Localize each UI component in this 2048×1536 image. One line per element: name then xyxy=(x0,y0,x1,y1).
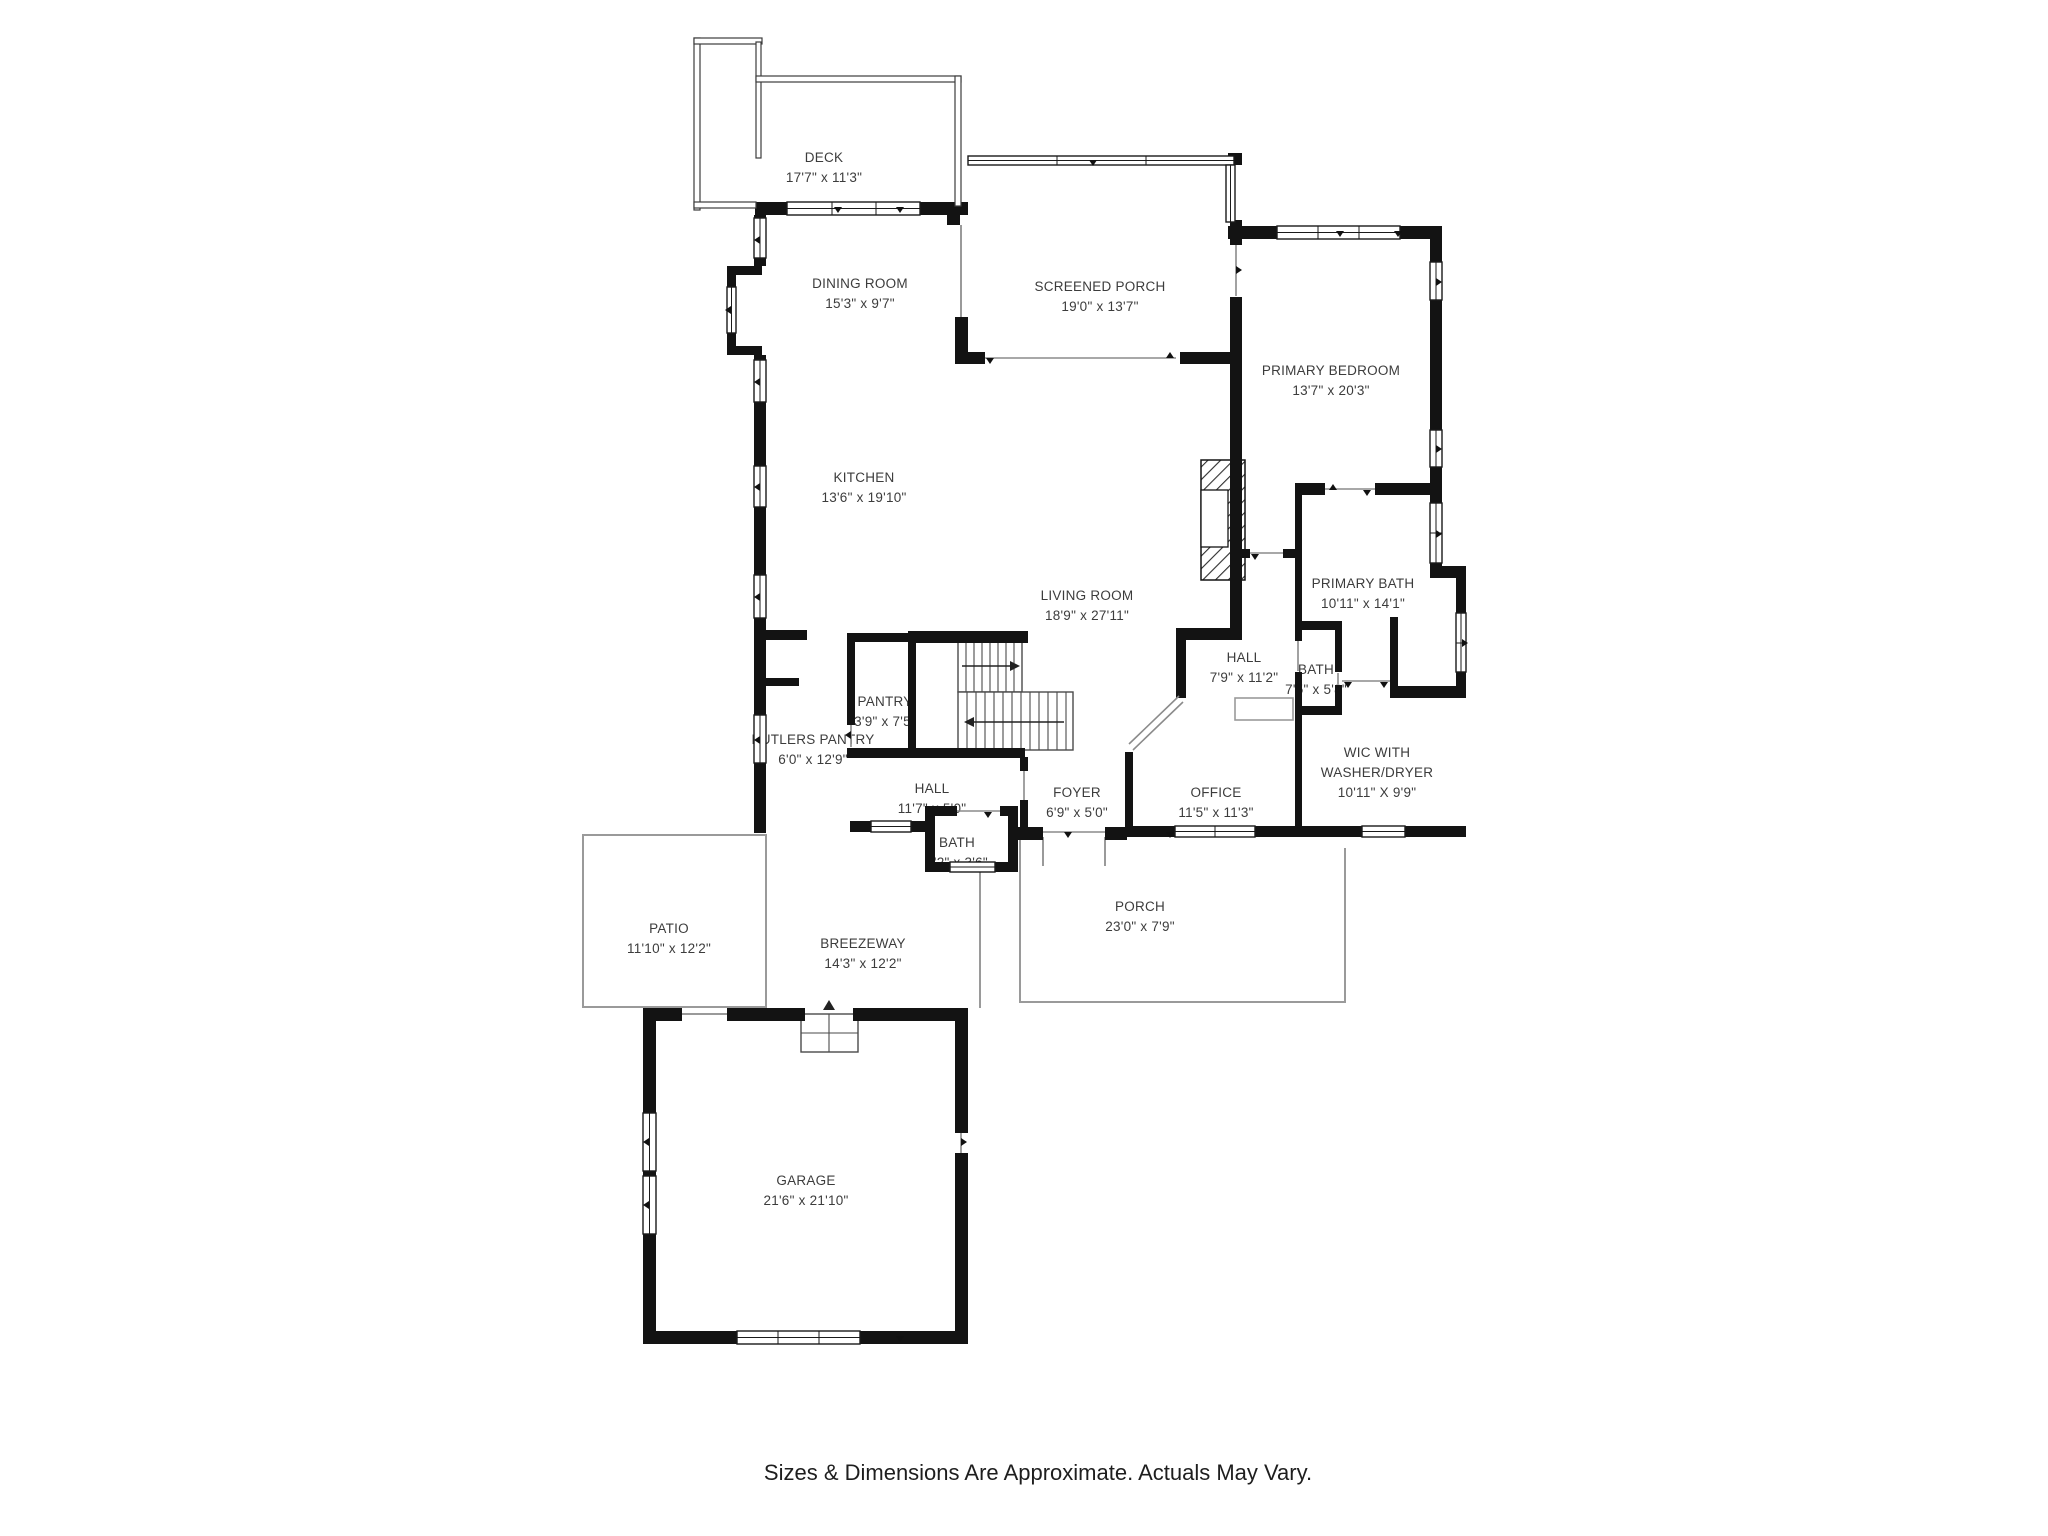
room-name: BUTLERS PANTRY xyxy=(751,732,874,747)
room-dims: 13'7" x 20'3" xyxy=(1292,383,1369,398)
room-name: KITCHEN xyxy=(833,470,894,485)
room-dims: 7'9" x 11'2" xyxy=(1210,670,1279,685)
room-name: FOYER xyxy=(1053,785,1101,800)
window xyxy=(950,862,995,872)
room-name: OFFICE xyxy=(1191,785,1242,800)
room-name: DECK xyxy=(805,150,844,165)
room-name: GARAGE xyxy=(776,1173,835,1188)
room-dims: 15'3" x 9'7" xyxy=(825,296,895,311)
room-label-garage: GARAGE21'6" x 21'10" xyxy=(763,1173,848,1208)
window xyxy=(871,821,911,832)
room-name: PANTRY xyxy=(857,694,912,709)
room-label-screened-porch: SCREENED PORCH19'0" x 13'7" xyxy=(1034,279,1165,314)
room-dims: 21'6" x 21'10" xyxy=(763,1193,848,1208)
room-dims: 23'0" x 7'9" xyxy=(1105,919,1175,934)
room-name-line2: WASHER/DRYER xyxy=(1321,765,1434,780)
room-dims: 6'0" x 12'9" xyxy=(778,752,848,767)
room-name: DINING ROOM xyxy=(812,276,908,291)
room-dims: 11'10" x 12'2" xyxy=(627,941,711,956)
room-name: PRIMARY BEDROOM xyxy=(1262,363,1400,378)
room-label-office: OFFICE11'5" x 11'3" xyxy=(1178,785,1253,820)
room-dims: 11'5" x 11'3" xyxy=(1178,805,1253,820)
room-dims: 13'6" x 19'10" xyxy=(821,490,906,505)
room-name: LIVING ROOM xyxy=(1041,588,1134,603)
office-angled-opening xyxy=(1129,696,1183,750)
staircase xyxy=(958,640,1073,750)
room-name: PATIO xyxy=(649,921,689,936)
room-label-deck: DECK17'7" x 11'3" xyxy=(786,150,862,185)
room-name: PRIMARY BATH xyxy=(1312,576,1415,591)
room-name: HALL xyxy=(915,781,950,796)
room-label-living-room: LIVING ROOM18'9" x 27'11" xyxy=(1041,588,1134,623)
porch-outline xyxy=(1020,837,1345,1002)
floor-plan: DECK17'7" x 11'3" SCREENED PORCH19'0" x … xyxy=(0,0,2048,1536)
room-label-foyer: FOYER6'9" x 5'0" xyxy=(1046,785,1108,820)
room-dims: 14'3" x 12'2" xyxy=(824,956,901,971)
room-name: WIC WITH xyxy=(1344,745,1410,760)
room-name: BATH xyxy=(1298,662,1334,677)
window xyxy=(1175,826,1255,837)
room-dims: 17'7" x 11'3" xyxy=(786,170,862,185)
room-label-primary-bedroom: PRIMARY BEDROOM13'7" x 20'3" xyxy=(1262,363,1400,398)
screened-porch-screens xyxy=(968,156,1235,222)
room-label-porch: PORCH23'0" x 7'9" xyxy=(1105,899,1175,934)
steps-up-arrow xyxy=(823,1000,835,1010)
room-dims: 3'9" x 7'5" xyxy=(854,714,916,729)
room-labels: DECK17'7" x 11'3" SCREENED PORCH19'0" x … xyxy=(627,150,1433,1208)
screen-panel xyxy=(968,156,1234,165)
room-label-wic: WIC WITHWASHER/DRYER10'11" X 9'9" xyxy=(1321,745,1434,800)
room-name: HALL xyxy=(1227,650,1262,665)
window xyxy=(1362,826,1405,837)
footer-disclaimer: Sizes & Dimensions Are Approximate. Actu… xyxy=(764,1460,1312,1485)
room-label-breezeway: BREEZEWAY14'3" x 12'2" xyxy=(820,936,906,971)
room-name: SCREENED PORCH xyxy=(1034,279,1165,294)
room-label-hall-upper: HALL7'9" x 11'2" xyxy=(1210,650,1279,685)
room-name: PORCH xyxy=(1115,899,1165,914)
room-dims: 18'9" x 27'11" xyxy=(1045,608,1129,623)
room-name: BREEZEWAY xyxy=(820,936,906,951)
room-label-pantry: PANTRY3'9" x 7'5" xyxy=(854,694,916,729)
room-name: BATH xyxy=(939,835,975,850)
garage-steps xyxy=(801,1000,858,1052)
room-label-kitchen: KITCHEN13'6" x 19'10" xyxy=(821,470,906,505)
room-label-patio: PATIO11'10" x 12'2" xyxy=(627,921,711,956)
room-dims: 6'9" x 5'0" xyxy=(1046,805,1108,820)
room-label-dining-room: DINING ROOM15'3" x 9'7" xyxy=(812,276,908,311)
chimney-chase xyxy=(1235,698,1293,720)
screen-panel xyxy=(1226,165,1235,222)
room-dims: 19'0" x 13'7" xyxy=(1061,299,1138,314)
room-dims: 10'11" x 14'1" xyxy=(1321,596,1405,611)
garage-door-window xyxy=(737,1331,860,1344)
room-label-primary-bath: PRIMARY BATH10'11" x 14'1" xyxy=(1312,576,1415,611)
room-dims: 10'11" X 9'9" xyxy=(1338,785,1417,800)
